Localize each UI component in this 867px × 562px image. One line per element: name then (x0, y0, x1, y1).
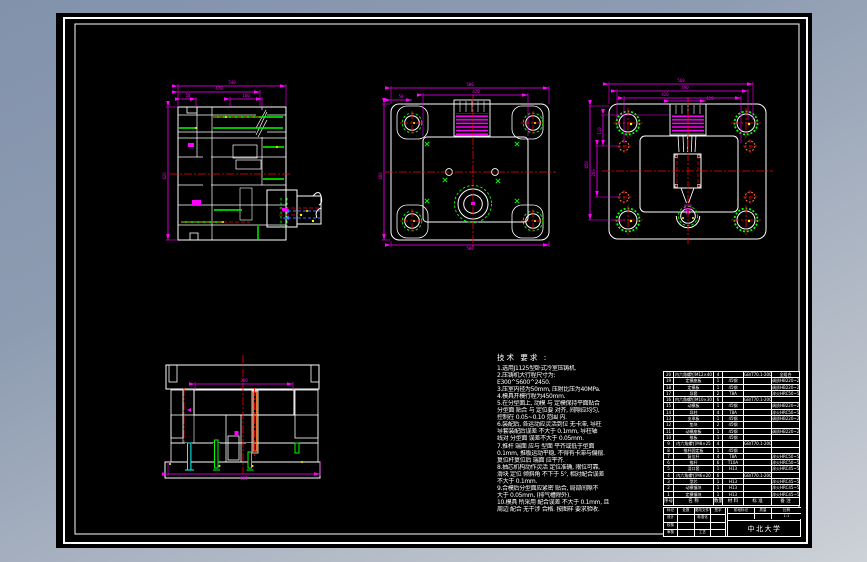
bom-cell-2: 1 (714, 429, 722, 434)
cavity-plate-outline (423, 137, 528, 222)
bom-cell-1: 动模座板 (674, 429, 713, 434)
bom-cell-4 (744, 378, 771, 383)
organization-name: 中北大学 (728, 520, 801, 536)
bom-cell-3 (723, 441, 743, 446)
bom-cell-3: H13 (723, 479, 743, 484)
bom-cell-0: 17 (664, 391, 673, 396)
bom-cell-3: T8A (723, 454, 743, 459)
bom-header: 名 称 (674, 498, 713, 505)
bom-cell-4 (744, 485, 771, 490)
bom-cell-3: 45钢 (723, 435, 743, 440)
dim-label: 260 (591, 169, 596, 177)
bom-cell-0: 12 (664, 422, 673, 427)
bom-cell-3: 45钢 (723, 429, 743, 434)
tech-note-line: E300^5600^2450. (497, 379, 627, 386)
bom-cell-1: 垫块 (674, 422, 713, 427)
tech-note-line: 滑块 定位 倾斜角 不下于 5°, 相对配合误差 (497, 471, 627, 478)
bom-cell-0: 16 (664, 397, 673, 402)
tb-standardize-label: 标准化 (695, 515, 710, 521)
bom-header-row: 序号名 称数量材 料标 准备 注 (663, 497, 800, 506)
tb-scale-value: 1:1 (772, 514, 801, 519)
dim-label: 650 (240, 476, 248, 481)
tech-note-line: 6.装配后, 各运动应灵活到位 无卡滞, 导柱 (497, 421, 627, 428)
tech-note-line: 4.模具开模行程为450mm. (497, 393, 627, 400)
bom-cell-2: 4 (714, 372, 722, 377)
bom-cell-0: 18 (664, 385, 673, 390)
dim-label: 160 (242, 93, 250, 98)
title-block: 标记 处数 更改文件号 签字 设计 标准化 校核 审核 工艺 阶段标记 质量 比… (663, 507, 801, 537)
tb-changedoc-label: 更改文件号 (695, 508, 710, 514)
bom-cell-1: 动模板 (674, 403, 713, 408)
bom-cell-1: 导柱 (674, 410, 713, 415)
dim-label: 50 (399, 94, 404, 99)
bom-cell-3: T8A (723, 410, 743, 415)
bom-cell-3: 45钢 (723, 448, 743, 453)
tech-note-line: 线对 分型面 误差不大于 0.05mm. (497, 435, 627, 442)
bom-cell-2: 1 (714, 385, 722, 390)
fixed-plate-section (194, 390, 294, 415)
tb-empty-cell (728, 514, 754, 519)
tech-note-line: 8.抽芯机构动作灵活 定位准确, 限位可靠, (497, 464, 627, 471)
dim-label: 500 (466, 82, 474, 87)
bom-cell-2: 1 (714, 466, 722, 471)
tb-empty-cell (755, 514, 771, 519)
return-pin-holes (617, 139, 757, 204)
bom-cell-0: 9 (664, 441, 673, 446)
tb-empty-cell (678, 530, 694, 536)
bom-cell-2: 1 (714, 416, 722, 421)
dim-label: 380 (240, 378, 248, 383)
bom-cell-5: 调质HB220~250 (772, 429, 799, 434)
tech-note-line: 9.合模后分型面应紧密 贴合, 局部间隙不 (497, 485, 627, 492)
bom-cell-4 (744, 429, 771, 434)
tech-note-line: 0.1mm, 推板运动平稳, 不得有卡滞与偏摆. (497, 450, 627, 457)
bom-cell-4 (744, 416, 771, 421)
dim-label: 560 (677, 78, 685, 83)
tech-note-line: 周边 配合 无干涉 合格. 按图样 要求验收. (497, 506, 627, 513)
bom-cell-2: 4 (714, 410, 722, 415)
bom-cell-3: H13 (723, 466, 743, 471)
bom-cell-4: GB/T70.1-2000 (744, 397, 771, 402)
bom-cell-4: GB/T70.1-2000 (744, 441, 771, 446)
bom-cell-1: 内六角螺钉M12×40 (674, 372, 713, 377)
bom-cell-2: 4 (714, 441, 722, 446)
gate-block (454, 100, 490, 136)
bom-cell-4: GB/T70.1-2000 (744, 372, 771, 377)
bom-cell-0: 20 (664, 372, 673, 377)
tb-empty-cell (695, 523, 710, 529)
bom-cell-5: 淬火HRC45~50 (772, 485, 799, 490)
side-section-view: 380 650 (165, 355, 320, 481)
bom-cell-5: 调质HB220~250 (772, 403, 799, 408)
tb-process-label: 工艺 (695, 530, 710, 536)
bom-cell-5: 淬火HRC50~55 (772, 454, 799, 459)
bom-header: 备 注 (772, 498, 799, 505)
tech-note-line: 7.推杆 端面 应与 型面 平齐或低于型面 (497, 443, 627, 450)
bom-cell-0: 14 (664, 410, 673, 415)
bom-cell-5: 调质HB220~250 (772, 378, 799, 383)
bom-cell-0: 2 (664, 485, 673, 490)
bom-cell-2: 1 (714, 435, 722, 440)
bom-cell-5: 淬火HRC50~55 (772, 460, 799, 465)
bom-cell-1: 定模板 (674, 385, 713, 390)
title-block-scale-grid: 阶段标记 质量 比例 1:1 (728, 508, 801, 519)
technical-notes-title: 技术 要求 : (497, 352, 627, 363)
front-section-view: 540 470 50 160 420 (162, 80, 322, 240)
dim-label: 450 (584, 161, 589, 169)
tech-note-line: 复位杆复位后 端面 应平齐. (497, 457, 627, 464)
tech-note-line: 2.压铸机大行程尺寸为: (497, 372, 627, 379)
bom-cell-0: 5 (664, 466, 673, 471)
tb-stage-label: 阶段标记 (728, 508, 754, 513)
bom-cell-1: 推杆 (674, 460, 713, 465)
bom-cell-5 (772, 473, 799, 478)
tech-note-line: 3.压室内径为50mm, 压射比压为40MPa. (497, 386, 627, 393)
bom-cell-2: 1 (714, 448, 722, 453)
bom-cell-1: 浇口套 (674, 466, 713, 471)
dim-label: 490 (681, 85, 689, 90)
bom-cell-4 (744, 466, 771, 471)
bom-header: 数量 (714, 498, 722, 505)
tech-note-line: 控制在 0.05~0.10 范围 内. (497, 414, 627, 421)
bom-cell-2: 6 (714, 397, 722, 402)
bom-cell-4 (744, 435, 771, 440)
bom-cell-2: 2 (714, 391, 722, 396)
moving-half-plan-view: 560 490 420 120 450 260 110 (584, 78, 773, 244)
bom-cell-0: 13 (664, 416, 673, 421)
dim-label: 420 (472, 89, 480, 94)
tb-count-label: 处数 (678, 508, 694, 514)
bom-header: 材 料 (723, 498, 743, 505)
bom-cell-5 (772, 422, 799, 427)
tech-note-line: 分型面 贴合 与 定位要 对齐, 间隙应均匀, (497, 407, 627, 414)
bom-cell-3 (723, 397, 743, 402)
technical-notes-lines: 1.选用J1125型卧式冷室压铸机.2.压铸机大行程尺寸为:E300^5600^… (497, 365, 627, 513)
fixed-half-plan-view: 500 420 50 480 500 (378, 82, 556, 251)
bom-cell-0: 10 (664, 435, 673, 440)
tech-note-line: 导套装配后误差 不大于 0.1mm, 导柱轴 (497, 428, 627, 435)
bom-cell-0: 6 (664, 460, 673, 465)
bom-cell-4 (744, 460, 771, 465)
bom-cell-0: 15 (664, 403, 673, 408)
bom-cell-4 (744, 448, 771, 453)
bom-cell-3 (723, 473, 743, 478)
bom-header: 标 准 (744, 498, 771, 505)
bom-cell-1: 定模座板 (674, 378, 713, 383)
bom-cell-3: 45钢 (723, 416, 743, 421)
bom-cell-1: 内六角螺钉M10×30 (674, 397, 713, 402)
tb-empty-cell (711, 515, 725, 521)
dim-label: 420 (162, 172, 167, 180)
bom-cell-3: 45钢 (723, 403, 743, 408)
tb-empty-cell (711, 530, 725, 536)
bom-cell-2: 4 (714, 454, 722, 459)
tech-note-line: 10.模具 所采用 配合误差 不大于 0.1mm, 且 (497, 499, 627, 506)
bom-cell-2: 6 (714, 460, 722, 465)
dim-label: 470 (215, 86, 223, 91)
bom-cell-2: 6 (714, 473, 722, 478)
bom-cell-5: 淬火HRC45~50 (772, 466, 799, 471)
bom-cell-0: 11 (664, 429, 673, 434)
bom-cell-1: 推板 (674, 435, 713, 440)
bom-cell-2: 1 (714, 403, 722, 408)
tb-audit-label: 审核 (664, 530, 677, 536)
bom-cell-0: 4 (664, 473, 673, 478)
tb-design-label: 设计 (664, 515, 677, 521)
tb-check-label: 校核 (664, 523, 677, 529)
screw-marks (425, 142, 519, 203)
bom-cell-4 (744, 385, 771, 390)
tech-note-line: 不大于 0.1mm. (497, 478, 627, 485)
bom-cell-3: T10A (723, 460, 743, 465)
tb-empty-cell (711, 523, 725, 529)
dim-label: 120 (706, 96, 714, 101)
bom-cell-3: 45钢 (723, 378, 743, 383)
bom-cell-5 (772, 435, 799, 440)
bom-cell-1: 导套 (674, 391, 713, 396)
dim-label: 110 (597, 127, 602, 135)
bom-cell-5: 淬火HRC50~55 (772, 391, 799, 396)
bom-table: 20内六角螺钉M12×404GB/T70.1-2000全组合19定模座板145钢… (663, 371, 800, 498)
bom-cell-4 (744, 410, 771, 415)
bom-cell-3: T8A (723, 391, 743, 396)
bom-cell-0: 7 (664, 454, 673, 459)
bom-cell-2: 1 (714, 378, 722, 383)
tb-empty-cell (678, 515, 694, 521)
bom-cell-3: H13 (723, 485, 743, 490)
bom-cell-2: 1 (714, 479, 722, 484)
bom-cell-5: 调质HB220~250 (772, 385, 799, 390)
bom-cell-4 (744, 403, 771, 408)
technical-notes: 技术 要求 : 1.选用J1125型卧式冷室压铸机.2.压铸机大行程尺寸为:E3… (497, 352, 627, 513)
bom-cell-3: 45钢 (723, 385, 743, 390)
app-background: 540 470 50 160 420 (0, 0, 867, 562)
bom-cell-2: 1 (714, 485, 722, 490)
tb-scale-label: 比例 (772, 508, 801, 513)
bom-cell-0: 3 (664, 479, 673, 484)
dim-label: 420 (661, 92, 669, 97)
bom-cell-0: 8 (664, 448, 673, 453)
bom-cell-4 (744, 422, 771, 427)
bom-cell-1: 内六角螺钉M8×25 (674, 441, 713, 446)
bom-cell-1: 复位杆 (674, 454, 713, 459)
tb-empty-cell (678, 523, 694, 529)
nozzle-attachment (267, 190, 322, 229)
dim-label: 500 (466, 246, 474, 251)
bom-cell-5 (772, 448, 799, 453)
title-block-signature-grid: 标记 处数 更改文件号 签字 设计 标准化 校核 审核 工艺 (664, 508, 726, 536)
title-block-right: 阶段标记 质量 比例 1:1 中北大学 (727, 508, 801, 536)
bom-cell-5 (772, 397, 799, 402)
tech-note-line: 大于 0.05mm, (排气槽除外). (497, 492, 627, 499)
tb-weight-label: 质量 (755, 508, 771, 513)
bom-cell-4 (744, 479, 771, 484)
bom-cell-0: 19 (664, 378, 673, 383)
tech-note-line: 5.在分型面上, 动模 与 定模保持平面贴合 (497, 400, 627, 407)
bom-cell-1: 内六角螺钉M6×20 (674, 473, 713, 478)
bom-cell-2: 2 (714, 422, 722, 427)
bom-cell-5 (772, 441, 799, 446)
moving-plate-section (171, 415, 318, 443)
bom-cell-5: 淬火HRC50~55 (772, 410, 799, 415)
ejector-channel (203, 143, 211, 202)
bom-cell-4 (744, 391, 771, 396)
tech-note-line: 1.选用J1125型卧式冷室压铸机. (497, 365, 627, 372)
bom-cell-1: 动模镶块 (674, 485, 713, 490)
bolt-lines (179, 117, 284, 222)
dim-label: 50 (186, 93, 191, 98)
ejector-pins (169, 440, 303, 470)
bom-cell-3 (723, 372, 743, 377)
bom-cell-4: GB/T70.1-2000 (744, 473, 771, 478)
sprue-section (252, 391, 258, 453)
bom-cell-1: 推杆固定板 (674, 448, 713, 453)
dim-label: 540 (228, 80, 236, 85)
tb-mark-label: 标记 (664, 508, 677, 514)
dimensions-view-b: 500 420 50 480 500 (378, 82, 549, 251)
bom-cell-1: 支承板 (674, 416, 713, 421)
bom-cell-5: 调质HB220~250 (772, 416, 799, 421)
dim-label: 480 (378, 172, 383, 180)
bom-cell-1: 型芯 (674, 479, 713, 484)
bom-header: 序号 (664, 498, 673, 505)
bom-cell-3: 45钢 (723, 422, 743, 427)
bom-cell-4 (744, 454, 771, 459)
bom-cell-5: 淬火HRC45~50 (772, 479, 799, 484)
tb-sign-label: 签字 (711, 508, 725, 514)
bom-cell-5: 全组合 (772, 372, 799, 377)
